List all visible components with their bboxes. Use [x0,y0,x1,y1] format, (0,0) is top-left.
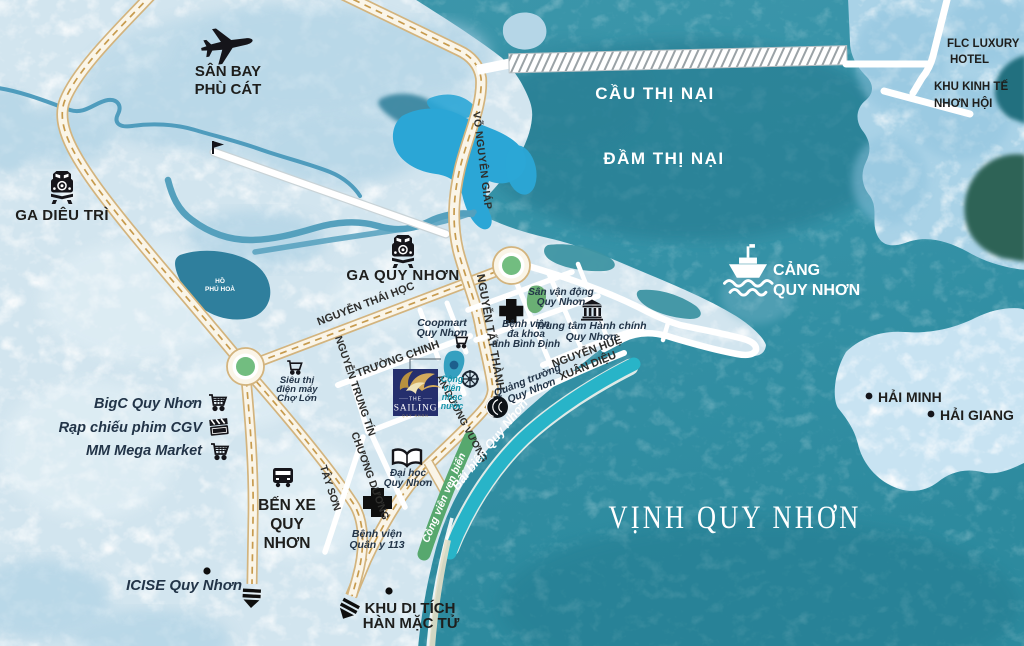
svg-text:GA QUY NHƠN: GA QUY NHƠN [346,267,459,284]
svg-text:HÀN MẶC TỬ: HÀN MẶC TỬ [363,614,460,632]
svg-text:ICISE Quy Nhơn: ICISE Quy Nhơn [126,577,242,594]
svg-text:GA DIÊU TRÌ: GA DIÊU TRÌ [15,206,109,224]
svg-text:CẢNG: CẢNG [773,260,820,279]
svg-text:HẢI MINH: HẢI MINH [878,389,942,405]
svg-text:KHU KINH TẾ: KHU KINH TẾ [934,80,1008,93]
svg-text:PHÚ HOÀ: PHÚ HOÀ [205,284,235,293]
svg-text:ĐẦM THỊ NẠI: ĐẦM THỊ NẠI [603,149,724,168]
svg-text:MM Mega Market: MM Mega Market [86,443,203,459]
svg-text:SÂN BAY: SÂN BAY [195,62,261,80]
svg-text:Chợ Lớn: Chợ Lớn [277,393,317,404]
svg-text:Rạp chiếu phim CGV: Rạp chiếu phim CGV [59,420,204,436]
svg-text:Quy Nhơn: Quy Nhơn [537,297,585,308]
svg-text:BigC Quy Nhơn: BigC Quy Nhơn [94,396,202,412]
svg-text:QUY NHƠN: QUY NHƠN [773,282,860,299]
svg-text:QUY: QUY [270,516,304,533]
svg-text:BẾN XE: BẾN XE [258,497,316,514]
svg-text:HẢI GIANG: HẢI GIANG [940,407,1014,423]
svg-text:QUY NHON: QUY NHON [402,414,429,418]
svg-text:CẦU THỊ NẠI: CẦU THỊ NẠI [595,84,714,103]
svg-text:PHÙ CÁT: PHÙ CÁT [195,80,262,98]
svg-text:Quân y 113: Quân y 113 [349,539,404,551]
svg-text:Quy Nhơn: Quy Nhơn [417,327,468,339]
svg-text:Quy Nhơn: Quy Nhơn [384,478,432,489]
svg-text:SAILING: SAILING [394,404,438,414]
svg-text:NHƠN: NHƠN [264,535,311,552]
svg-text:NHƠN HỘI: NHƠN HỘI [934,97,992,110]
svg-text:Quy Nhơn: Quy Nhơn [566,331,617,343]
svg-text:THE: THE [409,397,422,403]
svg-text:tỉnh Bình Định: tỉnh Bình Định [492,339,560,350]
svg-text:HOTEL: HOTEL [950,54,989,66]
svg-text:VỊNH QUY NHƠN: VỊNH QUY NHƠN [609,500,862,536]
svg-text:FLC LUXURY: FLC LUXURY [947,38,1020,50]
svg-text:nước: nước [441,401,464,411]
